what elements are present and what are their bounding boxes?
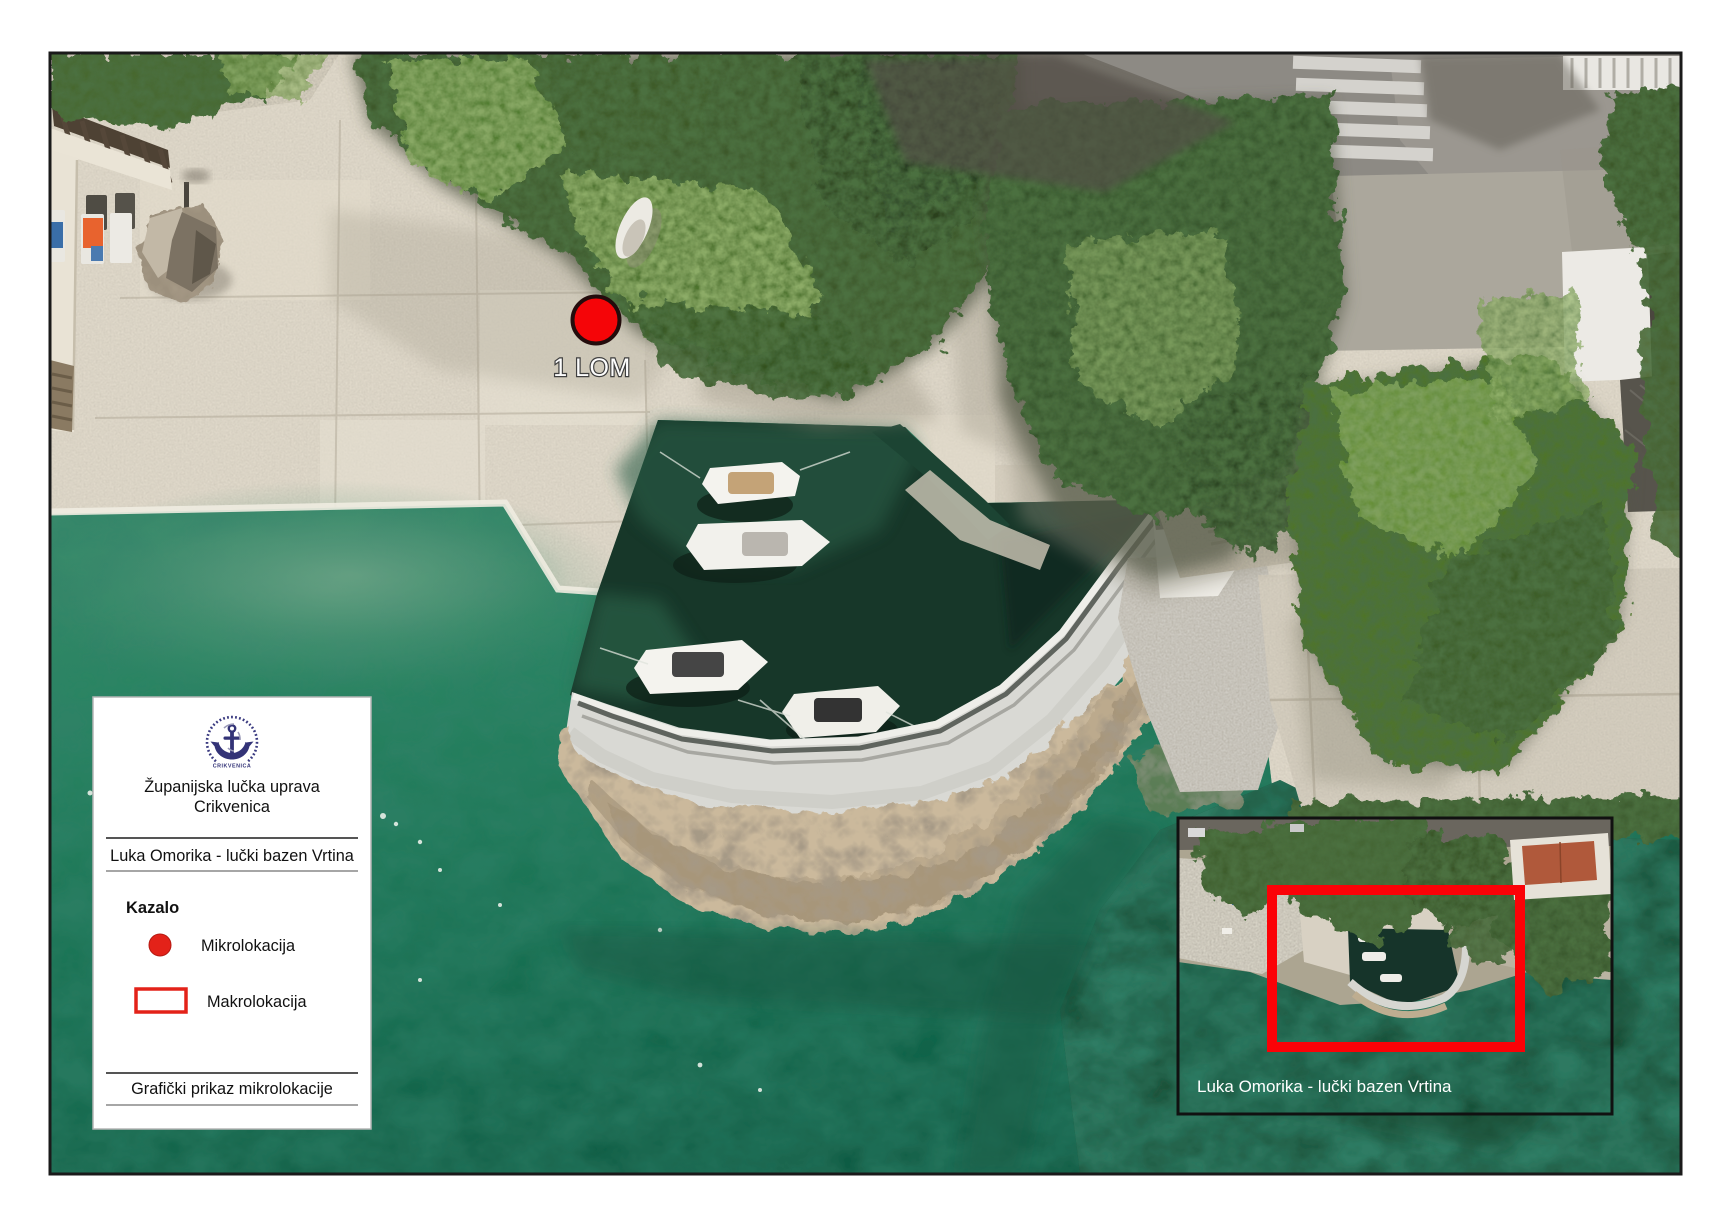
svg-text:Makrolokacija: Makrolokacija — [207, 993, 307, 1011]
svg-text:Mikrolokacija: Mikrolokacija — [201, 937, 296, 955]
svg-text:CRIKVENICA: CRIKVENICA — [213, 764, 252, 770]
svg-text:Luka Omorika - lučki bazen Vrt: Luka Omorika - lučki bazen Vrtina — [110, 847, 355, 865]
svg-text:Crikvenica: Crikvenica — [194, 798, 271, 816]
svg-text:Kazalo: Kazalo — [126, 899, 179, 917]
svg-text:Županijska lučka uprava: Županijska lučka uprava — [144, 777, 321, 796]
svg-text:Grafički prikaz mikrolokacije: Grafički prikaz mikrolokacije — [131, 1080, 333, 1098]
svg-text:Luka Omorika - lučki bazen Vrt: Luka Omorika - lučki bazen Vrtina — [1197, 1077, 1452, 1096]
svg-text:1 LOM: 1 LOM — [553, 354, 631, 382]
